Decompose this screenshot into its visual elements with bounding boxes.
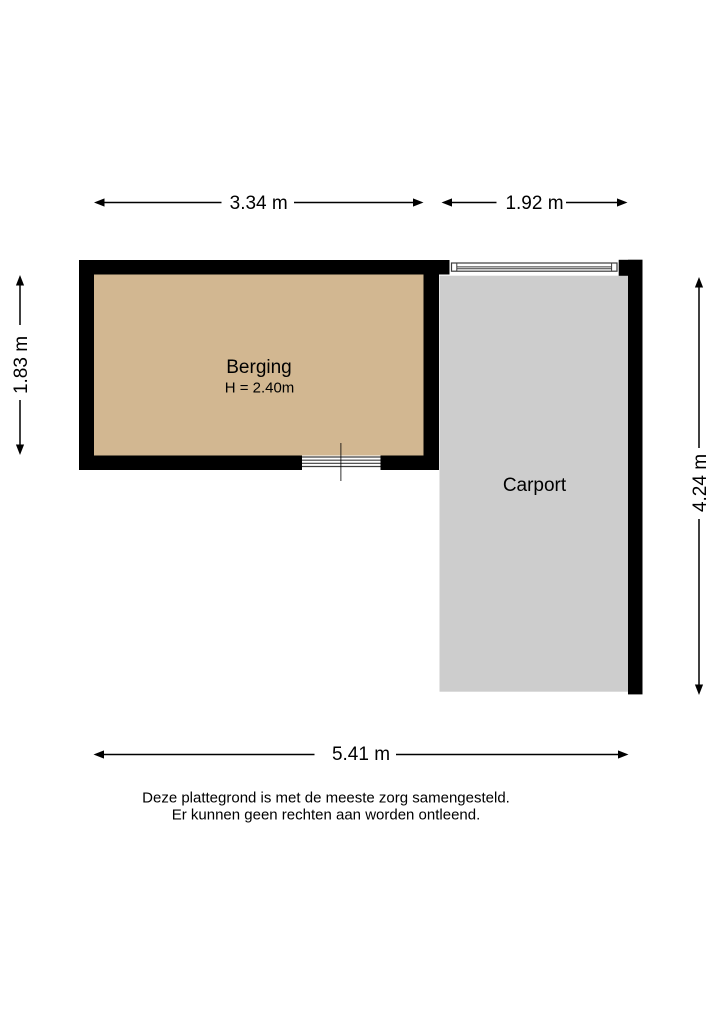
svg-text:1.83 m: 1.83 m xyxy=(11,336,32,394)
svg-text:3.34 m: 3.34 m xyxy=(230,193,288,214)
svg-text:Carport: Carport xyxy=(503,475,567,496)
svg-text:H = 2.40m: H = 2.40m xyxy=(225,379,295,396)
svg-text:4.24 m: 4.24 m xyxy=(690,454,711,512)
svg-text:5.41 m: 5.41 m xyxy=(332,744,390,765)
svg-text:1.92 m: 1.92 m xyxy=(505,193,563,214)
svg-text:Berging: Berging xyxy=(226,357,292,378)
svg-text:Deze plattegrond is met de mee: Deze plattegrond is met de meeste zorg s… xyxy=(142,790,510,807)
svg-text:Er kunnen geen rechten aan wor: Er kunnen geen rechten aan worden ontlee… xyxy=(172,807,481,824)
